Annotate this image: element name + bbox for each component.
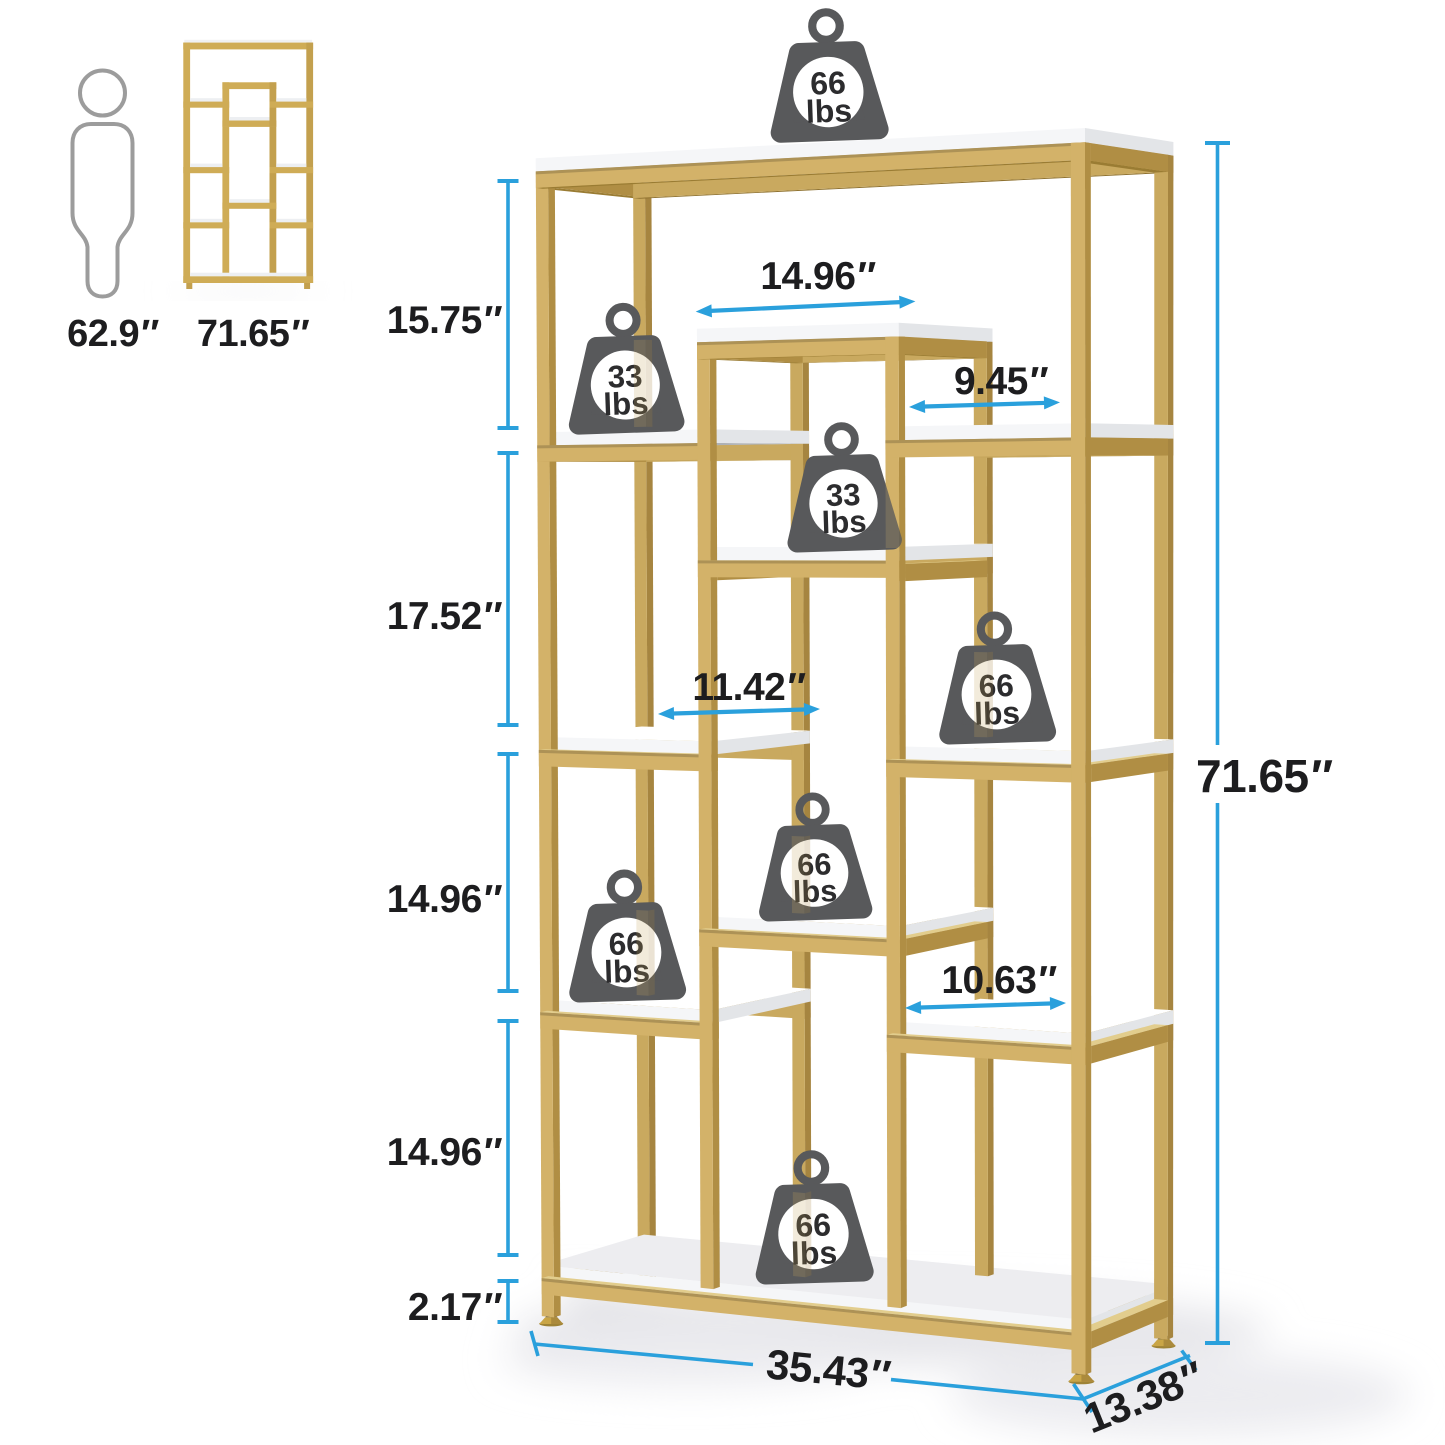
svg-text:14.96″: 14.96″ <box>387 878 503 921</box>
svg-text:14.96″: 14.96″ <box>760 255 876 298</box>
svg-text:10.63″: 10.63″ <box>941 959 1057 1002</box>
svg-text:17.52″: 17.52″ <box>387 595 503 638</box>
svg-text:71.65″: 71.65″ <box>197 313 310 355</box>
svg-text:71.65″: 71.65″ <box>1196 750 1333 802</box>
svg-text:14.96″: 14.96″ <box>387 1131 503 1174</box>
svg-text:lbs: lbs <box>821 504 867 540</box>
svg-text:lbs: lbs <box>805 92 852 130</box>
svg-text:9.45″: 9.45″ <box>954 360 1049 403</box>
svg-text:62.9″: 62.9″ <box>67 313 159 355</box>
svg-text:2.17″: 2.17″ <box>408 1286 503 1329</box>
svg-text:11.42″: 11.42″ <box>692 666 806 709</box>
svg-text:15.75″: 15.75″ <box>387 299 503 342</box>
